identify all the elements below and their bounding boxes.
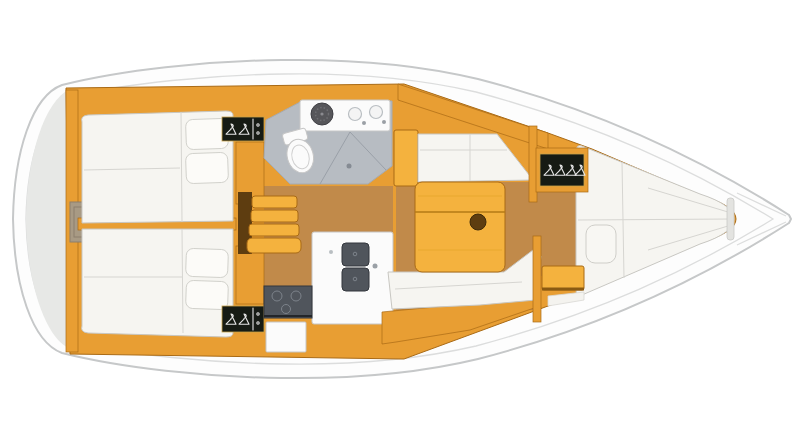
faucet-dot [373,264,378,269]
fwd-bulkhead [533,236,541,322]
faucet-dot [382,120,386,124]
berth-pillow [186,248,229,277]
galley-sink [342,268,369,291]
berth-headboard [727,198,734,240]
head-compartment [264,100,392,184]
step [247,238,301,253]
cup-holder [470,214,486,230]
step [251,210,298,222]
floorplan-canvas [0,0,800,446]
sink-bowl [370,106,383,119]
sink-bowl [349,108,362,121]
step [249,224,299,236]
counter-knob [329,250,333,254]
hanging-locker [222,117,264,141]
fwd-step [542,266,584,290]
boat-floorplan [0,0,800,446]
washbasin-drain [320,112,323,115]
galley-sink [342,243,369,266]
infill-cushion [586,225,616,263]
oven-front [266,322,306,352]
berth-pillow [185,152,228,183]
saloon-table [415,182,505,272]
cabin-cabinet [236,246,264,304]
step [252,196,297,208]
hanging-locker [222,306,264,332]
faucet-dot [362,121,366,125]
settee-armrest [394,130,418,186]
berth-pillow [186,280,229,309]
shower-drain [347,164,352,169]
